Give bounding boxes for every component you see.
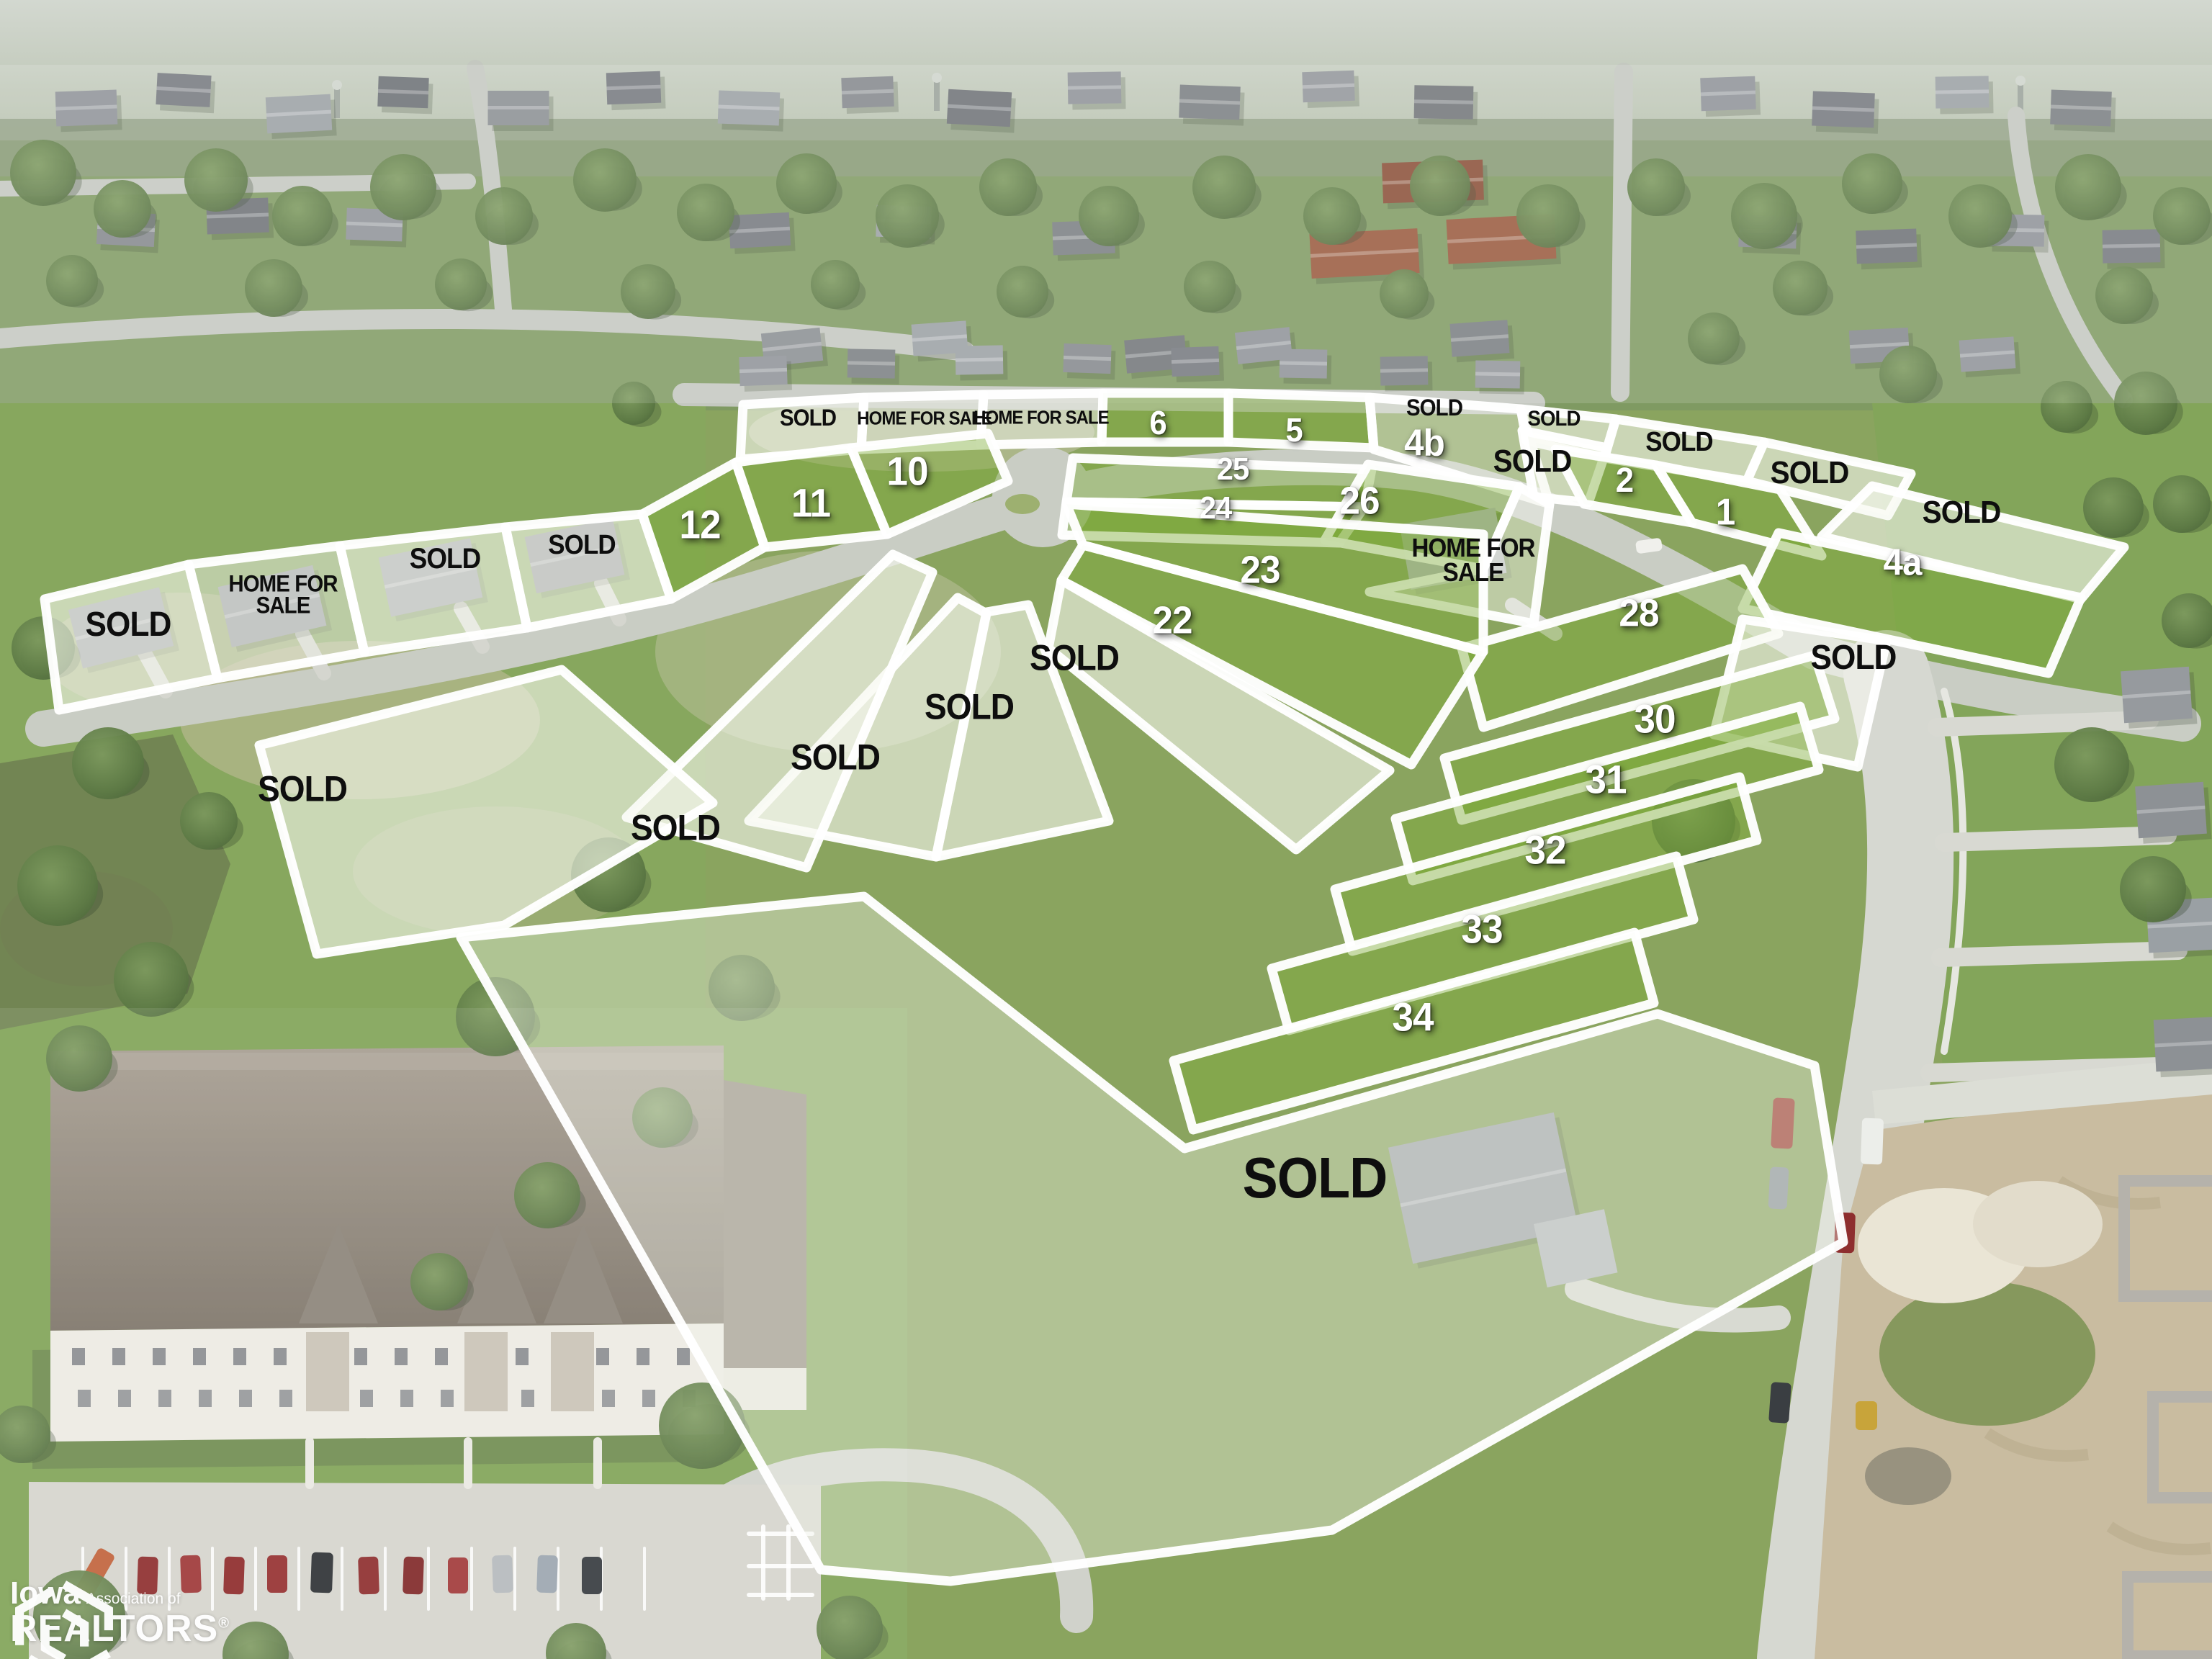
lot-number-label-22: 22 (1152, 602, 1192, 639)
lot-number-label-11: 11 (791, 483, 830, 521)
lot-status-label-sold: SOLD (1923, 498, 2001, 528)
lot-status-label-sold: SOLD (1771, 458, 1849, 488)
lot-number-label-4a: 4a (1883, 545, 1921, 580)
lot-labels-layer: SOLDHOME FOR SALEHOME FOR SALESOLDSOLDSO… (0, 0, 2212, 1659)
lot-status-label-sold: SOLD (1030, 641, 1119, 675)
lot-status-label-sold: SOLD (780, 407, 836, 428)
aerial-lot-map: SOLDHOME FOR SALEHOME FOR SALESOLDSOLDSO… (0, 0, 2212, 1659)
lot-status-label-sold: SOLD (258, 772, 347, 806)
lot-number-label-33: 33 (1461, 909, 1502, 948)
lot-status-label-sold: SOLD (1528, 409, 1581, 430)
lot-status-label-home-for-sale: HOME FOR SALE (857, 410, 992, 428)
registered-mark: ® (218, 1616, 230, 1632)
lot-status-label-sold: SOLD (1645, 429, 1712, 455)
lot-status-label-sold: SOLD (631, 811, 720, 845)
lot-number-label-12: 12 (679, 505, 720, 543)
lot-number-label-34: 34 (1392, 997, 1433, 1035)
lot-number-label-10: 10 (886, 451, 927, 490)
brand-logo: IowaAssociation of REALTORS® (10, 1578, 230, 1649)
lot-number-label-26: 26 (1339, 482, 1379, 519)
lot-number-label-28: 28 (1619, 595, 1658, 631)
lot-status-label-sold: SOLD (548, 532, 615, 558)
lot-number-label-32: 32 (1524, 830, 1565, 868)
lot-status-label-sold: SOLD (1493, 446, 1572, 477)
lot-number-label-30: 30 (1634, 699, 1675, 737)
lot-number-label-23: 23 (1240, 552, 1280, 588)
lot-status-label-home-for-sale: HOME FORSALE (228, 573, 337, 617)
lot-status-label-sold: SOLD (1243, 1151, 1388, 1205)
lot-number-label-6: 6 (1149, 408, 1166, 439)
lot-number-label-4b: 4b (1404, 426, 1444, 461)
hexagon-icon (10, 1578, 118, 1659)
lot-number-label-2: 2 (1616, 464, 1633, 498)
lot-number-label-5: 5 (1285, 415, 1302, 446)
lot-status-label-sold: SOLD (1406, 397, 1462, 418)
lot-status-label-sold: SOLD (86, 608, 171, 642)
lot-status-label-sold: SOLD (410, 545, 481, 572)
lot-number-label-24: 24 (1200, 493, 1232, 523)
lot-status-label-sold: SOLD (1811, 642, 1897, 675)
lot-status-label-sold: SOLD (925, 690, 1014, 724)
lot-status-label-sold: SOLD (791, 740, 880, 775)
lot-number-label-31: 31 (1585, 760, 1626, 798)
lot-number-label-1: 1 (1716, 495, 1735, 530)
lot-status-label-home-for-sale: HOME FOR SALE (974, 409, 1108, 427)
lot-number-label-25: 25 (1217, 454, 1249, 485)
lot-status-label-home-for-sale: HOME FORSALE (1411, 536, 1534, 585)
